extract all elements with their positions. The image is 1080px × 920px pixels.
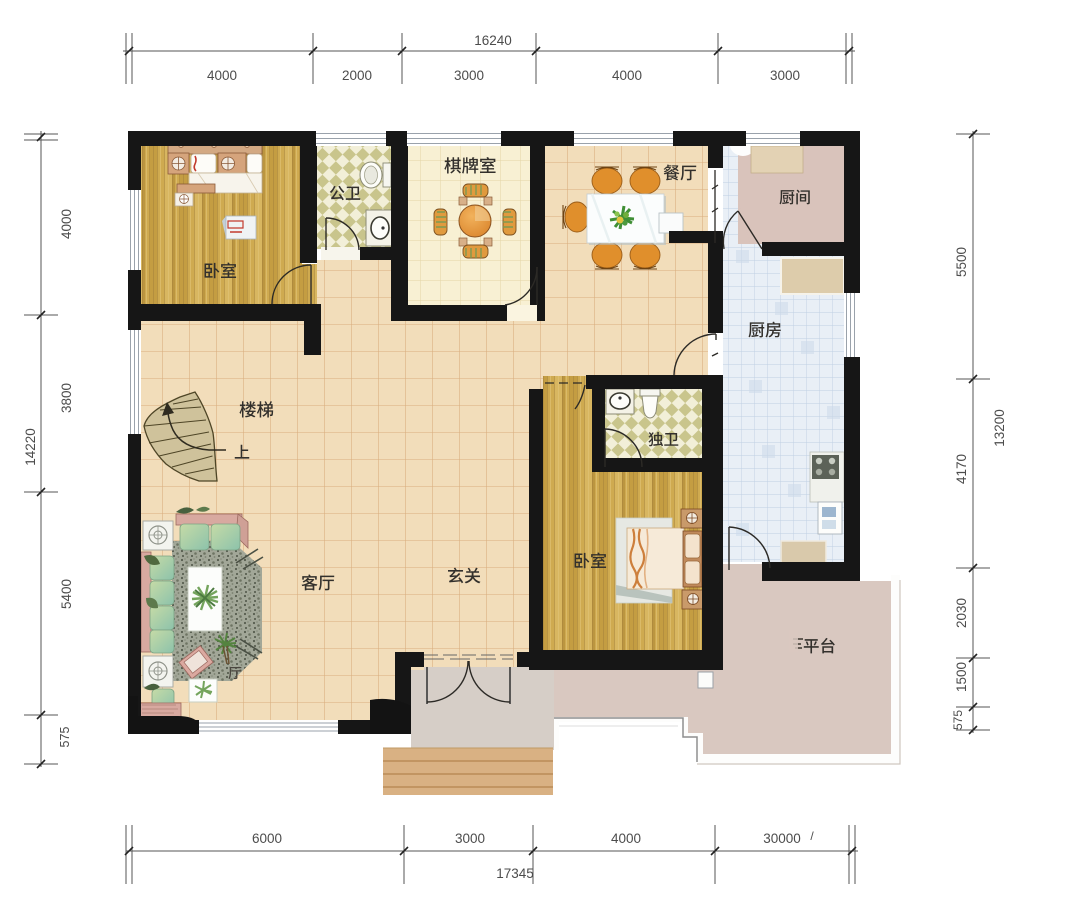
svg-text:2000: 2000: [342, 68, 372, 83]
svg-text:16240: 16240: [474, 33, 512, 48]
svg-text:5500: 5500: [954, 247, 969, 277]
svg-text:4000: 4000: [59, 209, 74, 239]
svg-text:14220: 14220: [23, 428, 38, 466]
svg-text:30000: 30000: [763, 831, 801, 846]
svg-text:4000: 4000: [207, 68, 237, 83]
svg-text:3000: 3000: [455, 831, 485, 846]
svg-text:4000: 4000: [611, 831, 641, 846]
svg-text:3000: 3000: [770, 68, 800, 83]
svg-text:6000: 6000: [252, 831, 282, 846]
svg-text:4170: 4170: [954, 454, 969, 484]
svg-text:4000: 4000: [612, 68, 642, 83]
svg-text:575: 575: [58, 727, 72, 748]
svg-text:575: 575: [951, 710, 965, 730]
svg-text:3800: 3800: [59, 383, 74, 413]
svg-text:3000: 3000: [454, 68, 484, 83]
svg-text:2030: 2030: [954, 598, 969, 628]
svg-text:17345: 17345: [496, 866, 534, 881]
svg-text:1500: 1500: [954, 662, 969, 692]
svg-text:13200: 13200: [992, 409, 1007, 447]
svg-text:5400: 5400: [59, 579, 74, 609]
